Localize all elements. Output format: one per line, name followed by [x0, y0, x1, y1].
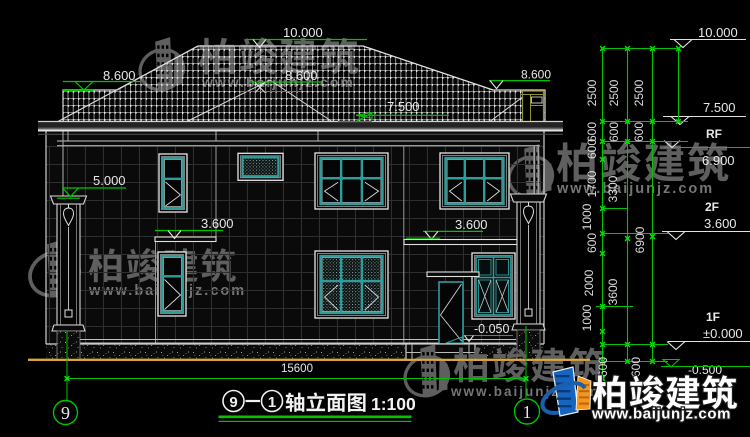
svg-text:8.600: 8.600 [103, 68, 136, 83]
svg-text:6.900: 6.900 [702, 153, 735, 168]
svg-text:8.600: 8.600 [521, 68, 551, 82]
svg-text:1:100: 1:100 [371, 394, 416, 414]
svg-text:2500: 2500 [632, 79, 646, 106]
svg-text:6900: 6900 [633, 226, 647, 253]
svg-text:5.000: 5.000 [93, 173, 126, 188]
svg-text:1000: 1000 [580, 304, 594, 331]
svg-text:-0.050: -0.050 [474, 322, 509, 336]
svg-text:www.baijunjz.com: www.baijunjz.com [591, 406, 731, 423]
svg-text:RF: RF [706, 127, 722, 141]
svg-text:1700: 1700 [585, 170, 599, 197]
svg-text:7.500: 7.500 [387, 99, 420, 114]
svg-text:600: 600 [596, 357, 610, 377]
svg-text:1F: 1F [706, 310, 720, 324]
svg-text:3300: 3300 [606, 175, 620, 202]
svg-text:1: 1 [268, 394, 276, 411]
svg-text:2500: 2500 [607, 79, 621, 106]
svg-text:7.500: 7.500 [703, 100, 736, 115]
svg-text:600: 600 [585, 122, 599, 142]
svg-text:10.000: 10.000 [698, 25, 738, 40]
svg-text:2500: 2500 [585, 79, 599, 106]
svg-text:15600: 15600 [281, 363, 313, 375]
svg-text:600: 600 [632, 122, 646, 142]
svg-text:-0.500: -0.500 [688, 363, 722, 377]
svg-text:3.600: 3.600 [201, 216, 234, 231]
svg-text:600: 600 [585, 233, 599, 253]
svg-text:9: 9 [229, 394, 237, 411]
svg-text:600: 600 [607, 122, 621, 142]
svg-text:1000: 1000 [580, 203, 594, 230]
svg-text:1: 1 [523, 402, 532, 422]
svg-text:8.600: 8.600 [285, 68, 318, 83]
svg-text:3.600: 3.600 [704, 216, 737, 231]
svg-text:2000: 2000 [582, 269, 596, 296]
svg-text:600: 600 [629, 357, 643, 377]
svg-text:3600: 3600 [606, 278, 620, 305]
svg-text:www.baijunjz.com: www.baijunjz.com [556, 181, 714, 197]
svg-text:9: 9 [61, 403, 70, 423]
svg-text:2F: 2F [705, 200, 719, 214]
svg-text:3.600: 3.600 [455, 217, 488, 232]
svg-text:600: 600 [585, 139, 599, 159]
svg-text:±0.000: ±0.000 [703, 326, 743, 341]
svg-text:10.000: 10.000 [283, 25, 323, 40]
